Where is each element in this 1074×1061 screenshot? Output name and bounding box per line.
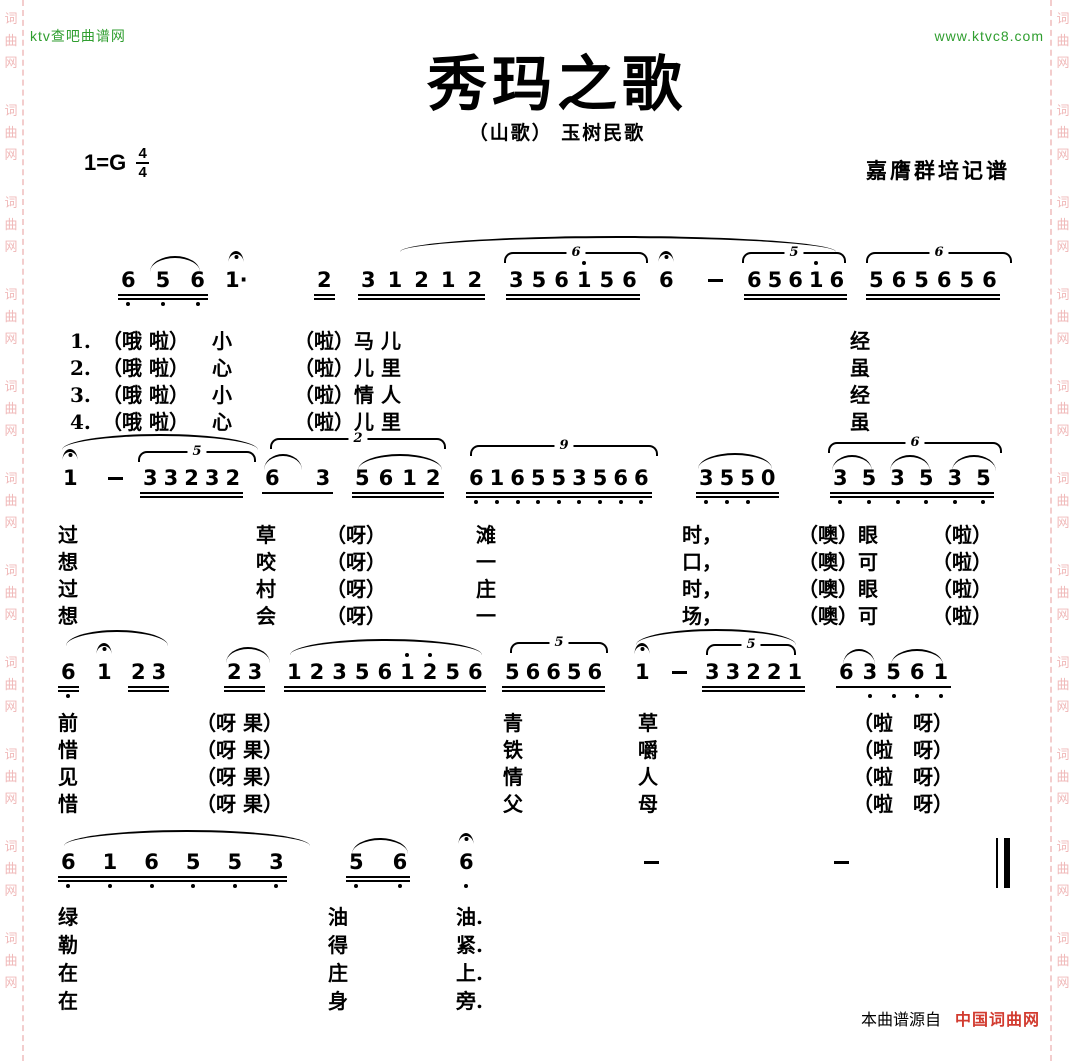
lyric-column: 过想过想 — [58, 522, 78, 630]
lyric-line: （啦 呀） — [853, 764, 953, 791]
note: 3 — [245, 660, 266, 684]
slur-arc — [400, 236, 836, 252]
lyric-column: （噢）眼（噢）可（噢）眼（噢）可 — [798, 522, 878, 630]
note-group: 6 — [456, 850, 477, 874]
note: 6 — [58, 850, 79, 874]
octave-dot-low — [577, 500, 581, 504]
beam-line — [140, 496, 243, 498]
lyric-line: 口， — [682, 549, 722, 576]
lyric-line: 想 — [58, 603, 78, 630]
lyric-line: （啦 呀） — [853, 791, 953, 818]
note-group: 123561256 — [284, 660, 486, 684]
beam-line — [358, 294, 485, 296]
note-group: 63 — [262, 466, 333, 490]
octave-dot-low — [196, 302, 200, 306]
note-group: 23 — [128, 660, 169, 684]
lyric-line: 小 — [212, 382, 232, 409]
tuplet-number: 2 — [348, 431, 367, 446]
octave-dot-low — [150, 884, 154, 888]
lyric-line: 情 — [503, 764, 523, 791]
fermata-icon — [229, 251, 244, 262]
note-group: 5612 — [352, 466, 444, 490]
note: 5 — [346, 850, 367, 874]
final-barline — [996, 838, 1010, 888]
note: 6 — [907, 660, 928, 684]
lyric-line: 在 — [58, 987, 78, 1015]
lyric-line: 紧. — [456, 931, 483, 959]
note: 1 — [438, 268, 459, 292]
note: 3 — [266, 850, 287, 874]
note-group: – — [704, 268, 727, 292]
note: 3 — [313, 466, 334, 490]
tuplet-number: 5 — [784, 245, 803, 260]
note-group: 65616 — [744, 268, 847, 292]
beam-line — [502, 690, 605, 692]
lyric-line: 上. — [456, 959, 483, 987]
tuplet-bracket: 6 — [504, 252, 648, 263]
beam-line — [128, 686, 169, 688]
note-group: 33232 — [140, 466, 243, 490]
beam-line — [118, 298, 208, 300]
lyric-line: 惜 — [58, 737, 78, 764]
note: 6 — [523, 660, 544, 684]
note-group: 1 — [60, 466, 81, 490]
lyric-column: （啦）马 儿（啦）儿 里（啦）情 人（啦）儿 里 — [294, 328, 401, 436]
beam-line — [346, 876, 410, 878]
lyric-column: 滩一庄一 — [476, 522, 496, 630]
octave-dot-low — [725, 500, 729, 504]
note: 2 — [181, 466, 202, 490]
beam-line — [744, 298, 847, 300]
footer-source: 本曲谱源自 中国词曲网 — [861, 1006, 1040, 1030]
note-group: 356156 — [506, 268, 640, 292]
note: 3 — [202, 466, 223, 490]
note-group: 56656 — [502, 660, 605, 684]
note: 1 — [399, 466, 420, 490]
beam-line — [744, 294, 847, 296]
note: 5 — [529, 268, 550, 292]
tuplet-bracket: 6 — [828, 442, 1002, 453]
note: 2 — [314, 268, 335, 292]
beam-line — [58, 686, 79, 688]
note: 5 — [973, 466, 994, 490]
lyric-line: （啦 呀） — [853, 737, 953, 764]
lyric-line: （啦）儿 里 — [294, 355, 401, 382]
lyric-line: 草 — [638, 710, 658, 737]
octave-dot-low — [953, 500, 957, 504]
note: 0 — [758, 466, 779, 490]
note: 3 — [702, 660, 723, 684]
lyric-line: 庄 — [328, 959, 348, 987]
octave-dot-low — [868, 694, 872, 698]
note-group: 63561 — [836, 660, 951, 684]
lyric-line: （呀） — [326, 576, 386, 603]
note-group: 1· — [222, 268, 251, 292]
tuplet-number: 9 — [554, 438, 573, 453]
note-group: – — [104, 466, 127, 490]
note: 5 — [564, 660, 585, 684]
dash-note: – — [704, 268, 727, 292]
note: 3 — [830, 466, 851, 490]
beam-line — [58, 880, 287, 882]
beam-line — [696, 496, 779, 498]
note: 3 — [696, 466, 717, 490]
note: 6 — [466, 466, 487, 490]
beam-line — [224, 690, 265, 692]
note: 1 — [100, 850, 121, 874]
lyric-line: 过 — [58, 522, 78, 549]
tuplet-number: 6 — [929, 245, 948, 260]
note: 6 — [934, 268, 955, 292]
note: 6 — [827, 268, 848, 292]
lyric-line: 庄 — [476, 576, 496, 603]
beam-line — [58, 690, 79, 692]
note: 6 — [456, 850, 477, 874]
beam-line — [830, 496, 994, 498]
lyric-line: （啦 呀） — [853, 710, 953, 737]
note: 1 — [632, 660, 653, 684]
octave-dot-low — [495, 500, 499, 504]
tuplet-bracket: 2 — [270, 438, 446, 449]
note: 3 — [329, 660, 350, 684]
lyric-line: （噢）眼 — [798, 522, 878, 549]
lyric-line: （啦） — [932, 576, 992, 603]
octave-dot-low — [274, 884, 278, 888]
note: 6 — [390, 850, 411, 874]
beam-line — [352, 496, 444, 498]
lyric-column: 草嚼人母 — [638, 710, 658, 818]
octave-dot-low — [536, 500, 540, 504]
lyric-line: 虽 — [850, 355, 870, 382]
lyric-line: 母 — [638, 791, 658, 818]
note: 1 — [487, 466, 508, 490]
lyric-column: （啦）（啦）（啦）（啦） — [932, 522, 992, 630]
note: 1 — [574, 268, 595, 292]
octave-dot-low — [704, 500, 708, 504]
note: 5 — [737, 466, 758, 490]
lyric-column: 草咬村会 — [256, 522, 276, 630]
note: 6 — [465, 660, 486, 684]
lyric-line: 铁 — [503, 737, 523, 764]
note: 5 — [442, 660, 463, 684]
note: 6 — [631, 466, 652, 490]
note: 6 — [375, 660, 396, 684]
dash-note: – — [104, 466, 127, 490]
octave-dot-low — [398, 884, 402, 888]
octave-dot-low — [639, 500, 643, 504]
octave-dot-low — [516, 500, 520, 504]
note: 5 — [911, 268, 932, 292]
lyric-line: 油. — [456, 903, 483, 931]
lyric-column: 绿勒在在 — [58, 903, 78, 1015]
note: 5 — [597, 268, 618, 292]
note: 1 — [931, 660, 952, 684]
octave-dot-low — [66, 694, 70, 698]
lyric-line: 时， — [682, 576, 722, 603]
note: 1 — [94, 660, 115, 684]
octave-dot-low — [474, 500, 478, 504]
dash-note: – — [640, 850, 663, 874]
note-group: 2 — [314, 268, 335, 292]
lyric-line: （噢）可 — [798, 549, 878, 576]
note: 5 — [225, 850, 246, 874]
note: 2 — [224, 660, 245, 684]
note: 1 — [385, 268, 406, 292]
note: 3 — [887, 466, 908, 490]
octave-dot-low — [126, 302, 130, 306]
lyric-line: 3. — [70, 382, 91, 409]
lyric-line: 经 — [850, 328, 870, 355]
lyric-line: 2. — [70, 355, 91, 382]
tuplet-bracket: 6 — [866, 252, 1012, 263]
note: 5 — [916, 466, 937, 490]
note: 6 — [58, 660, 79, 684]
note: 1 — [785, 660, 806, 684]
octave-dot-low — [354, 884, 358, 888]
octave-dot-low — [233, 884, 237, 888]
lyric-line: （哦 啦） — [102, 355, 189, 382]
lyric-line: （噢）眼 — [798, 576, 878, 603]
lyric-column: 青铁情父 — [503, 710, 523, 818]
lyric-line: 会 — [256, 603, 276, 630]
lyric-line: （啦）马 儿 — [294, 328, 401, 355]
octave-dot-low — [108, 884, 112, 888]
note: 6 — [656, 268, 677, 292]
lyric-line: 咬 — [256, 549, 276, 576]
lyric-line: （啦） — [932, 603, 992, 630]
lyric-line: （啦） — [932, 549, 992, 576]
note-group: 656 — [118, 268, 208, 292]
note-group: 6 — [58, 660, 79, 684]
lyric-column: （呀 果）（呀 果）（呀 果）（呀 果） — [196, 710, 283, 818]
octave-dot-high — [814, 261, 818, 265]
note: 5 — [352, 466, 373, 490]
lyric-column: 前惜见惜 — [58, 710, 78, 818]
lyric-line: 勒 — [58, 931, 78, 959]
dash-note: – — [668, 660, 691, 684]
note: 2 — [764, 660, 785, 684]
note: 3 — [358, 268, 379, 292]
tuplet-number: 5 — [549, 635, 568, 650]
beam-line — [284, 686, 486, 688]
note: 5 — [153, 268, 174, 292]
note: 5 — [590, 466, 611, 490]
beam-line — [866, 294, 1000, 296]
lyric-line: （哦 啦） — [102, 382, 189, 409]
notation-area: 6566561·2312123561566–656165656561.2.3.4… — [0, 0, 1074, 1061]
note: 5 — [866, 268, 887, 292]
footer-source-prefix: 本曲谱源自 — [861, 1006, 941, 1030]
lyric-line: 时， — [682, 522, 722, 549]
lyric-column: （啦 呀）（啦 呀）（啦 呀）（啦 呀） — [853, 710, 953, 818]
lyric-line: 经 — [850, 382, 870, 409]
note: 6 — [836, 660, 857, 684]
octave-dot-low — [896, 500, 900, 504]
note: 6 — [551, 268, 572, 292]
lyric-line: 1. — [70, 328, 91, 355]
octave-dot-low — [161, 302, 165, 306]
lyric-line: 虽 — [850, 409, 870, 436]
tuplet-bracket: 5 — [706, 644, 796, 655]
lyric-line: 小 — [212, 328, 232, 355]
beam-line — [502, 686, 605, 688]
note: 2 — [423, 466, 444, 490]
lyric-line: 村 — [256, 576, 276, 603]
note: 6 — [610, 466, 631, 490]
note: 6 — [543, 660, 564, 684]
lyric-line: 惜 — [58, 791, 78, 818]
lyric-line: （呀） — [326, 603, 386, 630]
beam-line — [702, 686, 805, 688]
octave-dot-high — [582, 261, 586, 265]
lyric-line: 人 — [638, 764, 658, 791]
beam-line — [466, 492, 652, 494]
note-group: 56 — [346, 850, 410, 874]
note: 6 — [979, 268, 1000, 292]
note: 2 — [465, 268, 486, 292]
note: 3 — [569, 466, 590, 490]
note: 2 — [128, 660, 149, 684]
lyric-line: 父 — [503, 791, 523, 818]
octave-dot-low — [915, 694, 919, 698]
note: 5 — [183, 850, 204, 874]
beam-line — [284, 690, 486, 692]
note-group: 3550 — [696, 466, 779, 490]
octave-dot-low — [867, 500, 871, 504]
beam-line — [506, 298, 640, 300]
tuplet-number: 6 — [566, 245, 585, 260]
octave-dot-low — [619, 500, 623, 504]
footer-site-link[interactable]: 中国词曲网 — [955, 1006, 1040, 1030]
lyric-line: 得 — [328, 931, 348, 959]
note: 2 — [420, 660, 441, 684]
beam-line — [466, 496, 652, 498]
note: 6 — [507, 466, 528, 490]
octave-dot-low — [981, 500, 985, 504]
beam-line — [262, 492, 333, 494]
note: 6 — [141, 850, 162, 874]
note: 3 — [723, 660, 744, 684]
note-group: 616553566 — [466, 466, 652, 490]
beam-line — [836, 686, 951, 688]
lyric-line: （啦）情 人 — [294, 382, 401, 409]
beam-line — [118, 294, 208, 296]
tuplet-bracket: 5 — [742, 252, 846, 263]
fermata-icon — [659, 251, 674, 262]
note-group: 1 — [94, 660, 115, 684]
lyric-line: 草 — [256, 522, 276, 549]
note: 1 — [284, 660, 305, 684]
note: 2 — [411, 268, 432, 292]
octave-dot-low — [924, 500, 928, 504]
note: 2 — [307, 660, 328, 684]
lyric-column: 油得庄身 — [328, 903, 348, 1015]
note: 6 — [744, 268, 765, 292]
note: 3 — [161, 466, 182, 490]
octave-dot-low — [598, 500, 602, 504]
note-group: 23 — [224, 660, 265, 684]
octave-dot-low — [191, 884, 195, 888]
lyric-line: 心 — [212, 355, 232, 382]
note: 3 — [506, 268, 527, 292]
note: 1 — [60, 466, 81, 490]
sheet-music-page: 词曲网词曲网词曲网词曲网词曲网词曲网词曲网词曲网词曲网词曲网词曲网 词曲网词曲网… — [0, 0, 1074, 1061]
beam-line — [224, 686, 265, 688]
lyric-line: 旁. — [456, 987, 483, 1015]
beam-line — [314, 294, 335, 296]
note: 5 — [549, 466, 570, 490]
octave-dot-low — [892, 694, 896, 698]
note-group: 565656 — [866, 268, 1000, 292]
lyric-column: （呀）（呀）（呀）（呀） — [326, 522, 386, 630]
note: 2 — [743, 660, 764, 684]
lyric-column: 油.紧.上.旁. — [456, 903, 483, 1015]
note: 5 — [765, 268, 786, 292]
lyric-line: 绿 — [58, 903, 78, 931]
lyric-line: 青 — [503, 710, 523, 737]
note: 3 — [860, 660, 881, 684]
lyric-line: （呀） — [326, 549, 386, 576]
lyric-line: （啦） — [932, 522, 992, 549]
octave-dot-low — [838, 500, 842, 504]
note: 6 — [118, 268, 139, 292]
note-group: 1 — [632, 660, 653, 684]
tuplet-number: 6 — [905, 435, 924, 450]
lyric-line: （噢）可 — [798, 603, 878, 630]
lyric-column: 时，口，时，场， — [682, 522, 722, 630]
beam-line — [346, 880, 410, 882]
note: 6 — [785, 268, 806, 292]
lyric-line: 见 — [58, 764, 78, 791]
beam-line — [702, 690, 805, 692]
lyric-line: 滩 — [476, 522, 496, 549]
lyric-line: 身 — [328, 987, 348, 1015]
note: 6 — [585, 660, 606, 684]
beam-line — [830, 492, 994, 494]
dash-note: – — [830, 850, 853, 874]
tuplet-number: 5 — [741, 637, 760, 652]
lyric-line: 场， — [682, 603, 722, 630]
note: 1 — [397, 660, 418, 684]
octave-dot-low — [557, 500, 561, 504]
lyric-line: （呀 果） — [196, 791, 283, 818]
lyric-column: 小心小心 — [212, 328, 232, 436]
lyric-line: （哦 啦） — [102, 328, 189, 355]
octave-dot-low — [939, 694, 943, 698]
lyric-line: 想 — [58, 549, 78, 576]
lyric-line: 4. — [70, 409, 91, 436]
note-group: – — [830, 850, 853, 874]
note-group: – — [668, 660, 691, 684]
octave-dot-low — [746, 500, 750, 504]
note: 2 — [223, 466, 244, 490]
staff-system-2: 52961–332326356126165535663550353535过想过想… — [0, 466, 1074, 666]
lyric-line: （呀） — [326, 522, 386, 549]
lyric-line: 前 — [58, 710, 78, 737]
note-group: – — [640, 850, 663, 874]
note: 3 — [149, 660, 170, 684]
note: 5 — [528, 466, 549, 490]
note: 1· — [222, 268, 251, 292]
tuplet-bracket: 5 — [138, 451, 256, 462]
lyric-line: （呀 果） — [196, 710, 283, 737]
lyric-line: 心 — [212, 409, 232, 436]
note: 3 — [140, 466, 161, 490]
note: 6 — [619, 268, 640, 292]
note: 6 — [889, 268, 910, 292]
beam-line — [866, 298, 1000, 300]
lyric-line: （哦 啦） — [102, 409, 189, 436]
